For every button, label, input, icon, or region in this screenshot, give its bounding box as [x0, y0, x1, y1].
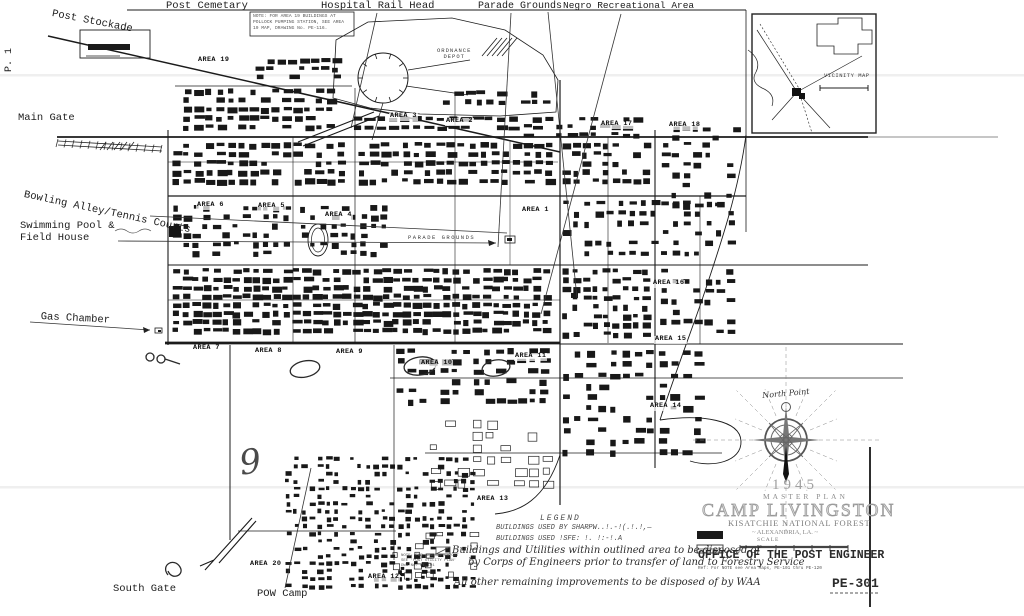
legend-heading: LEGEND: [540, 515, 581, 524]
map-labels-layer: Post StockadePost CemetaryHospital Rail …: [0, 0, 1024, 616]
title-scale: SCALE: [757, 537, 779, 543]
label-parade-grounds-field: PARADE GROUNDS: [408, 235, 475, 241]
area-2: AREA 2: [445, 118, 474, 126]
area-19: AREA 19: [197, 57, 230, 65]
title-kisatchie: KISATCHIE NATIONAL FOREST: [728, 519, 870, 529]
area-7: AREA 7: [192, 345, 221, 353]
label-parade-grounds: Parade Grounds: [478, 1, 562, 12]
scanned-map-page: Post StockadePost CemetaryHospital Rail …: [0, 0, 1024, 616]
legend-row-1: BUILDINGS USED BY SHARPW..!.-!(.!.!,—: [496, 525, 651, 533]
area-15: AREA 15: [654, 336, 687, 344]
area-12: AREA 12: [367, 574, 400, 582]
title-alexandria: ~ ALEXANDRIA, LA. ~: [752, 529, 818, 536]
area-11: AREA 11: [514, 353, 547, 361]
area-16: AREA 16: [652, 280, 685, 288]
note-area19: NOTE: FOR AREA 19 BUILDINGS AT POLLOCK P…: [253, 14, 352, 32]
label-field-house: Field House: [20, 233, 89, 245]
area-6: AREA 6: [196, 202, 225, 210]
area-5: AREA 5: [257, 203, 286, 211]
hand-nine: 9: [237, 442, 264, 483]
area-13: AREA 13: [476, 496, 509, 504]
label-pow-camp: POW Camp: [257, 589, 307, 601]
area-18: AREA 18: [668, 122, 701, 130]
label-negro-recreational-area: Negro Recreational Area: [563, 1, 694, 12]
note-legend-side: NOTE: FOR GENERAL LAYOUT SEE 'POST UTILI…: [401, 554, 461, 570]
area-14: AREA 14: [649, 403, 682, 411]
hand-north-point: North Point: [762, 388, 810, 401]
area-17: AREA 17: [600, 121, 633, 129]
area-3: AREA 3: [389, 113, 418, 121]
label-ordnance-depot: ORDNANCE DEPOT: [437, 48, 471, 60]
title-office: OFFICE OF THE POST ENGINEER: [698, 550, 884, 563]
legend-row-2: BUILDINGS USED !SFE: !. !:-!.A: [496, 536, 622, 544]
legend-hand-3: All other remaining improvements to be d…: [454, 577, 761, 588]
label-vicinity-map: VICINITY MAP: [824, 73, 870, 79]
label-hospital-rail-head: Hospital Rail Head: [321, 1, 434, 13]
area-20: AREA 20: [249, 561, 282, 569]
label-swimming-pool: Swimming Pool &: [20, 221, 115, 233]
label-gas-chamber: Gas Chamber: [40, 312, 110, 327]
title-drawing-number: PE-301: [832, 577, 879, 592]
page-marker: P. 1: [4, 48, 15, 72]
area-4: AREA 4: [324, 212, 353, 220]
label-south-gate: South Gate: [113, 584, 176, 596]
label-post-stockade: Post Stockade: [51, 9, 134, 36]
area-9: AREA 9: [335, 349, 364, 357]
area-1: AREA 1: [521, 207, 550, 215]
label-post-cemetary: Post Cemetary: [166, 1, 248, 13]
area-10: AREA 10: [420, 360, 453, 368]
area-8: AREA 8: [254, 348, 283, 356]
label-main-gate: Main Gate: [18, 113, 75, 125]
